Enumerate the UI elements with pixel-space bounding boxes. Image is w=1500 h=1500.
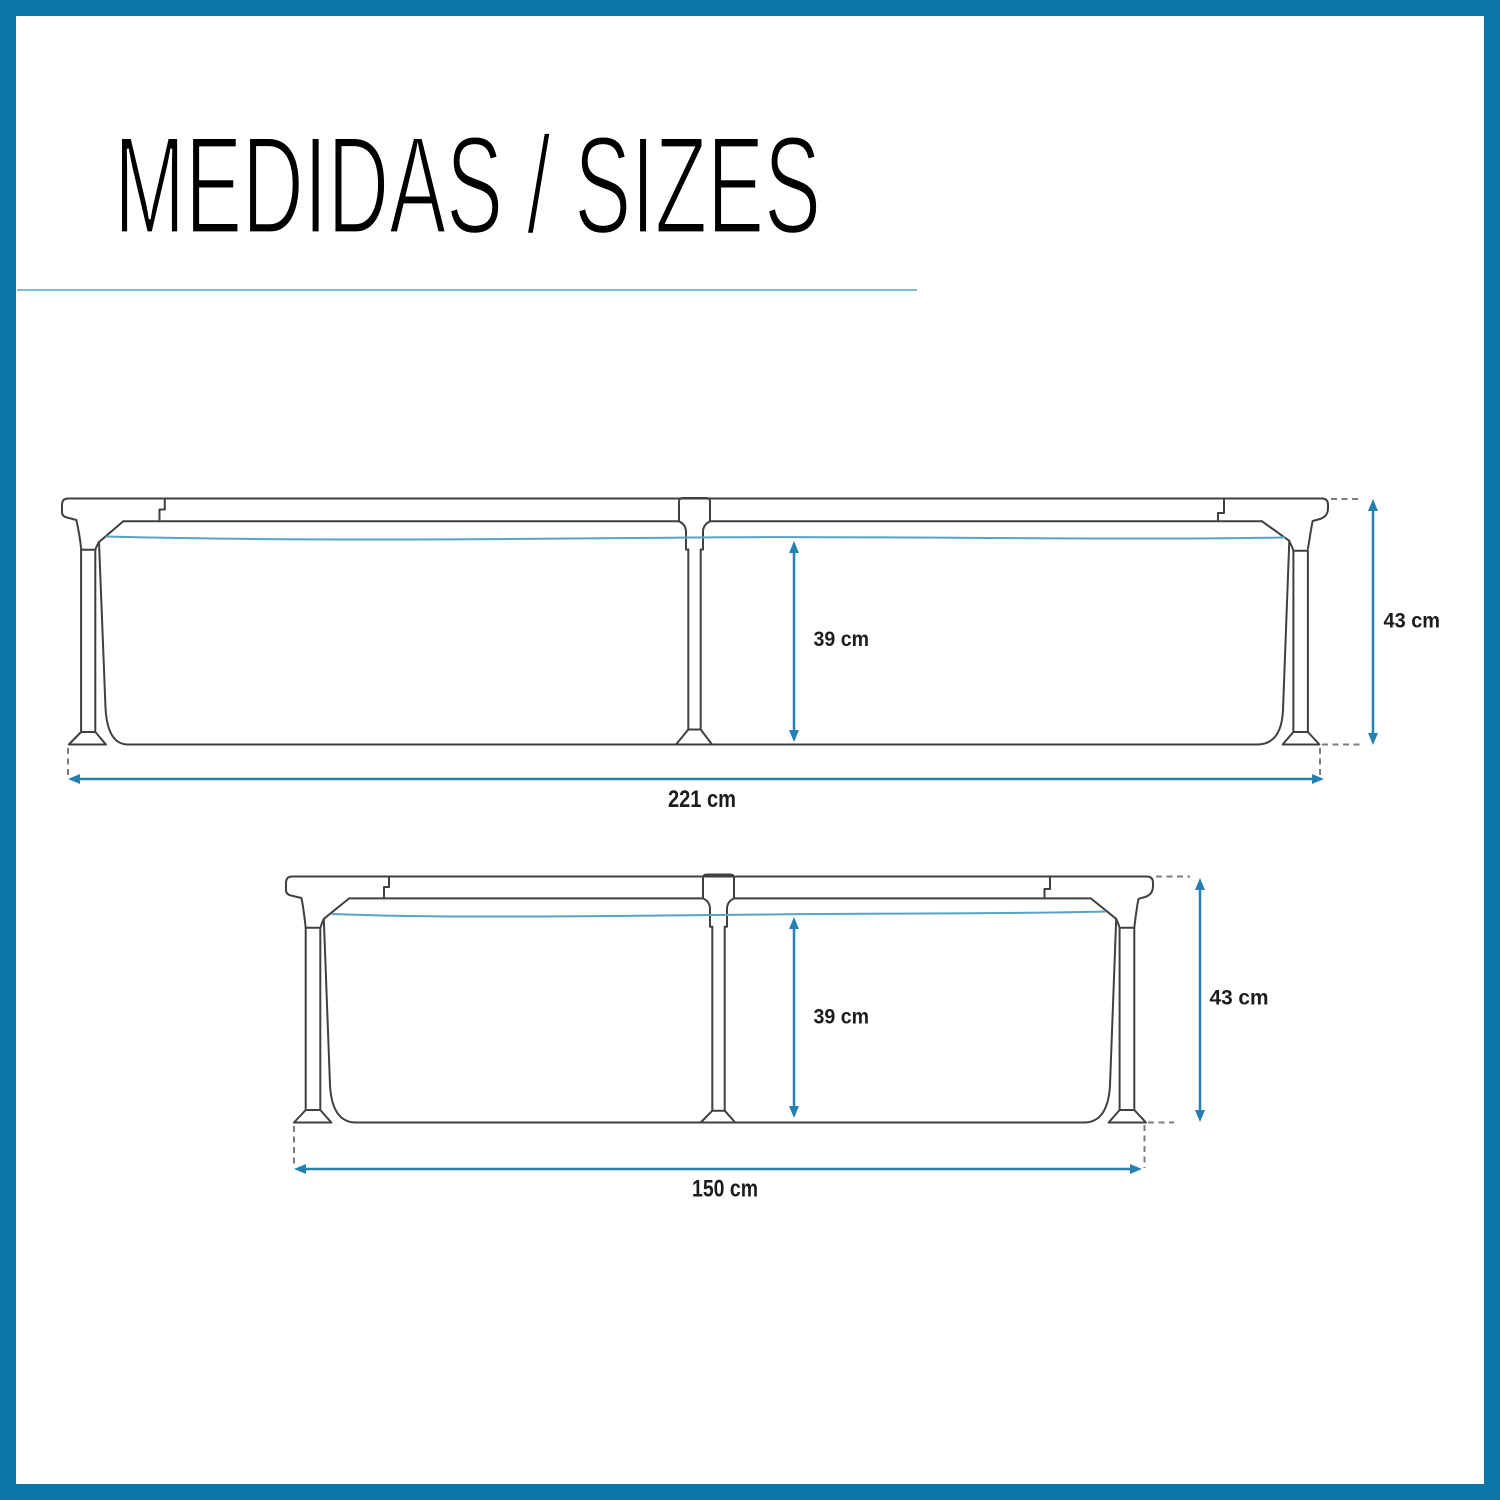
svg-text:39 cm: 39 cm: [814, 1005, 870, 1029]
svg-text:MEDIDAS / SIZES: MEDIDAS / SIZES: [114, 108, 821, 263]
svg-text:150 cm: 150 cm: [692, 1176, 758, 1203]
svg-text:43 cm: 43 cm: [1210, 985, 1269, 1009]
svg-text:43 cm: 43 cm: [1384, 609, 1441, 633]
svg-text:221 cm: 221 cm: [668, 786, 736, 813]
svg-text:39 cm: 39 cm: [814, 627, 870, 651]
